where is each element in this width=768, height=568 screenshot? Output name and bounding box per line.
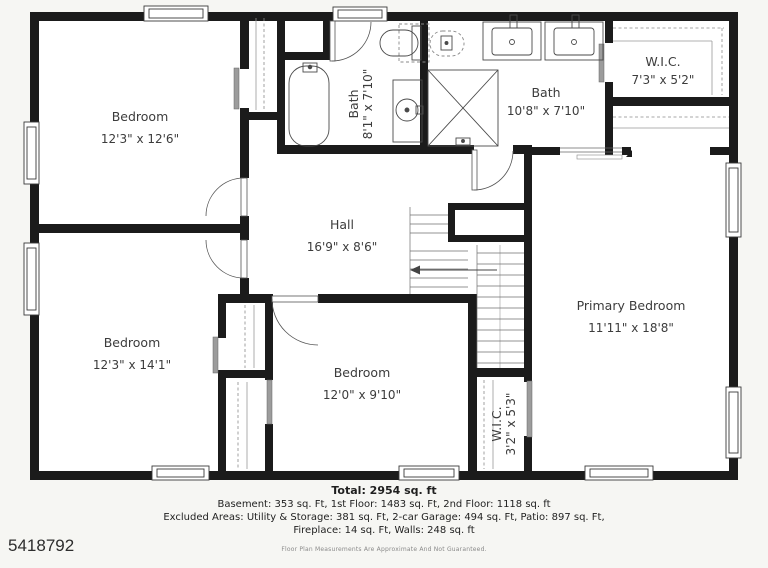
- svg-text:11'11" x 18'8": 11'11" x 18'8": [588, 321, 674, 335]
- svg-text:8'1" x 7'10": 8'1" x 7'10": [361, 69, 375, 140]
- svg-text:Bath: Bath: [346, 89, 361, 118]
- svg-text:Bedroom: Bedroom: [334, 365, 391, 380]
- svg-text:12'0" x 9'10": 12'0" x 9'10": [323, 388, 401, 402]
- window-top-1: [144, 6, 208, 21]
- svg-text:16'9" x 8'6": 16'9" x 8'6": [307, 240, 378, 254]
- floor-plan-page: Bedroom 12'3" x 12'6" Bedroom 12'3" x 14…: [0, 0, 768, 568]
- window-bottom-3: [585, 466, 653, 480]
- window-bottom-2: [399, 466, 459, 480]
- svg-text:7'3" x 5'2": 7'3" x 5'2": [632, 73, 695, 87]
- svg-text:10'8" x 7'10": 10'8" x 7'10": [507, 104, 585, 118]
- listing-id: 5418792: [8, 536, 74, 556]
- floor-plan: Bedroom 12'3" x 12'6" Bedroom 12'3" x 14…: [0, 0, 768, 568]
- disclaimer: Floor Plan Measurements Are Approximate …: [0, 543, 768, 556]
- svg-text:Bath: Bath: [531, 85, 560, 100]
- window-bottom-1: [152, 466, 209, 480]
- svg-text:W.I.C.: W.I.C.: [489, 406, 504, 441]
- slider-closet-upper: [213, 337, 218, 373]
- svg-text:W.I.C.: W.I.C.: [645, 54, 680, 69]
- floor-areas: Basement: 353 sq. Ft, 1st Floor: 1483 sq…: [0, 498, 768, 511]
- svg-text:12'3" x 14'1": 12'3" x 14'1": [93, 358, 171, 372]
- svg-text:Bedroom: Bedroom: [112, 109, 169, 124]
- window-top-2: [333, 7, 387, 21]
- svg-text:3'2" x 5'3": 3'2" x 5'3": [504, 393, 518, 456]
- svg-text:Bedroom: Bedroom: [104, 335, 161, 350]
- pocket-door-closet1: [234, 68, 239, 109]
- window-left-1: [24, 122, 39, 184]
- window-right-2: [726, 387, 741, 458]
- slider-closet-lower: [267, 380, 272, 424]
- window-right-1: [726, 163, 741, 237]
- svg-text:Hall: Hall: [330, 217, 354, 232]
- svg-text:Primary Bedroom: Primary Bedroom: [577, 298, 686, 313]
- slider-wic2: [527, 381, 532, 437]
- svg-text:12'3" x 12'6": 12'3" x 12'6": [101, 132, 179, 146]
- total-area: Total: 2954 sq. ft: [0, 484, 768, 497]
- excluded-areas-2: Fireplace: 14 sq. Ft, Walls: 248 sq. ft: [0, 524, 768, 537]
- area-summary: Total: 2954 sq. ft Basement: 353 sq. Ft,…: [0, 484, 768, 556]
- excluded-areas: Excluded Areas: Utility & Storage: 381 s…: [0, 511, 768, 524]
- window-left-2: [24, 243, 39, 315]
